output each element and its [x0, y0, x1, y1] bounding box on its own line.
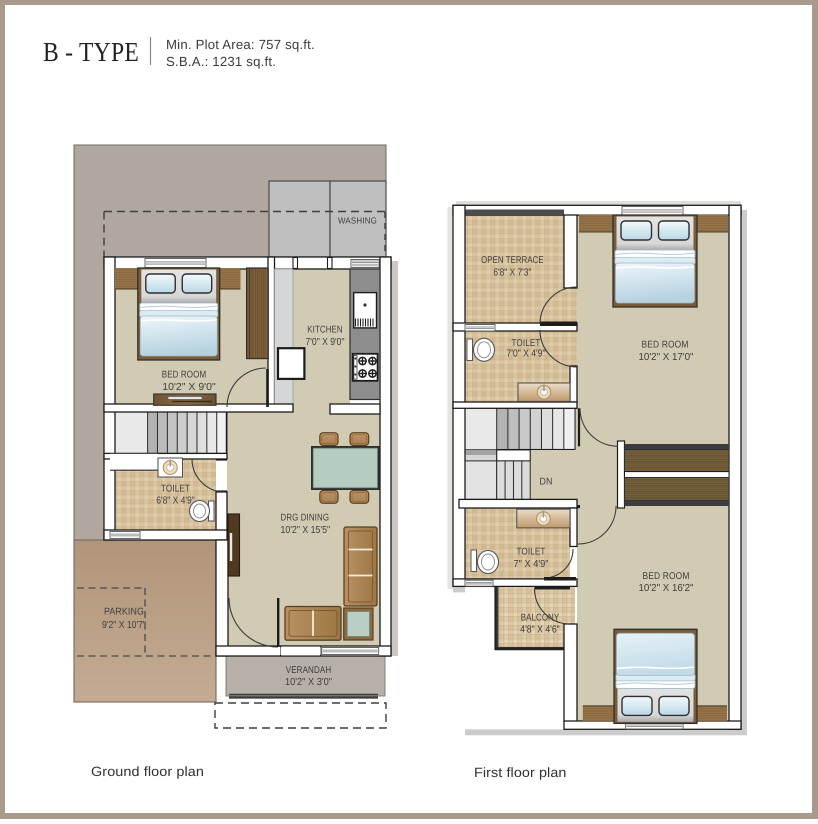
svg-text:Min. Plot Area: 757 sq.ft.: Min. Plot Area: 757 sq.ft.	[166, 37, 315, 52]
svg-text:10'2" X 16'2": 10'2" X 16'2"	[639, 583, 694, 594]
svg-text:DRG DINING: DRG DINING	[281, 513, 330, 524]
svg-text:WASHING: WASHING	[338, 216, 377, 226]
svg-text:First floor plan: First floor plan	[474, 765, 567, 780]
svg-text:DN: DN	[540, 476, 553, 487]
svg-text:KITCHEN: KITCHEN	[307, 325, 343, 336]
svg-text:PARKING: PARKING	[104, 607, 144, 618]
svg-text:BED ROOM: BED ROOM	[162, 369, 207, 380]
svg-text:OPEN TERRACE: OPEN TERRACE	[481, 255, 544, 266]
svg-text:7" X 4'9": 7" X 4'9"	[514, 559, 549, 570]
svg-text:6'8" X 4'9": 6'8" X 4'9"	[156, 495, 195, 506]
svg-text:10'2" X 17'0": 10'2" X 17'0"	[639, 352, 694, 363]
svg-text:10'2" X 9'0": 10'2" X 9'0"	[162, 382, 216, 393]
svg-text:BED ROOM: BED ROOM	[642, 340, 689, 351]
svg-text:S.B.A.: 1231 sq.ft.: S.B.A.: 1231 sq.ft.	[166, 54, 276, 69]
svg-text:Ground floor plan: Ground floor plan	[91, 764, 204, 779]
svg-text:4'8" X 4'6": 4'8" X 4'6"	[520, 624, 560, 635]
svg-text:7'0" X 9'0": 7'0" X 9'0"	[306, 337, 345, 348]
svg-text:BALCONY: BALCONY	[521, 612, 560, 623]
svg-text:TOILET: TOILET	[512, 338, 541, 349]
svg-text:TOILET: TOILET	[517, 547, 546, 558]
svg-text:6'8" X 7'3": 6'8" X 7'3"	[493, 268, 531, 279]
svg-text:9'2" X 10'7": 9'2" X 10'7"	[102, 620, 146, 631]
svg-text:TOILET: TOILET	[161, 484, 190, 495]
svg-text:BED ROOM: BED ROOM	[643, 571, 690, 582]
svg-text:VERANDAH: VERANDAH	[286, 665, 332, 676]
svg-text:B - TYPE: B - TYPE	[43, 36, 139, 67]
svg-text:10'2" X 15'5": 10'2" X 15'5"	[281, 525, 331, 536]
svg-text:10'2" X 3'0": 10'2" X 3'0"	[285, 677, 332, 688]
svg-text:7'0" X 4'9": 7'0" X 4'9"	[507, 349, 546, 360]
